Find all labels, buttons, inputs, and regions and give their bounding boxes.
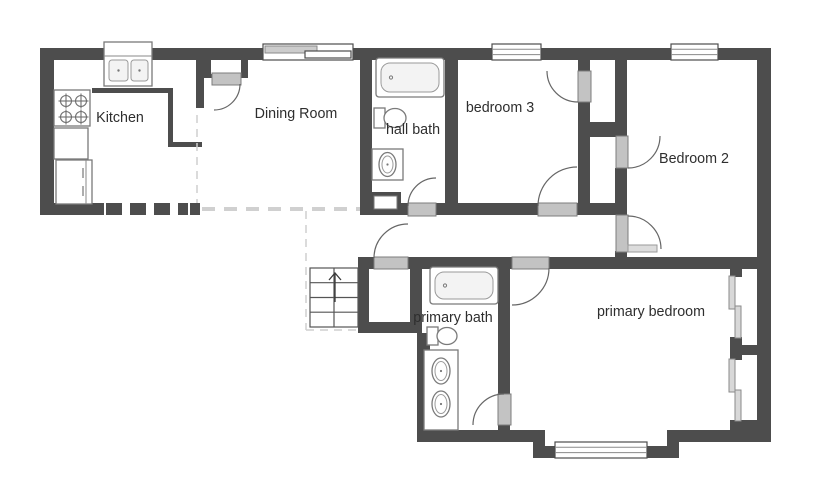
room-label-hall-bath: hall bath xyxy=(386,122,440,138)
hall-vanity-sink-icon xyxy=(372,149,403,180)
door-primary-bedroom xyxy=(512,257,549,305)
room-label-dining: Dining Room xyxy=(255,106,338,122)
window-bedroom2 xyxy=(671,44,718,60)
room-label-kitchen: Kitchen xyxy=(96,110,144,126)
walls xyxy=(40,48,771,458)
kitchen-sink-icon xyxy=(104,42,152,86)
refrigerator-icon xyxy=(56,160,92,204)
closet-sliding-doors-upper xyxy=(729,276,741,338)
primary-toilet-icon xyxy=(427,327,457,345)
primary-double-vanity-icon xyxy=(424,350,458,430)
primary-bathtub-icon xyxy=(430,267,498,304)
window-bedroom3 xyxy=(492,44,541,60)
door-kitchen-dining xyxy=(212,73,241,110)
closet-sliding-doors-lower xyxy=(729,359,741,421)
hall-linen-niche xyxy=(370,192,401,215)
stairs xyxy=(310,268,358,327)
floor-plan: Kitchen Dining Room hall bath bedroom 3 … xyxy=(0,0,821,504)
door-hall-bath xyxy=(408,178,436,216)
counter-cabinet-icon xyxy=(54,128,88,159)
door-bedroom2-closet xyxy=(616,136,660,168)
door-bedroom2 xyxy=(616,215,661,252)
door-bedroom3 xyxy=(538,167,577,216)
window-dining xyxy=(263,44,353,60)
room-label-bedroom2: Bedroom 2 xyxy=(659,151,729,167)
door-hall-closet xyxy=(374,224,408,269)
door-primary-bath xyxy=(473,394,511,425)
floor-plan-page: Kitchen Dining Room hall bath bedroom 3 … xyxy=(0,0,821,504)
window-primary-bedroom xyxy=(555,442,647,458)
door-bedroom3-closet xyxy=(547,71,591,102)
room-label-primary-bedroom: primary bedroom xyxy=(597,304,705,320)
room-label-primary-bath: primary bath xyxy=(413,310,493,326)
stove-icon xyxy=(54,90,90,126)
room-label-bedroom3: bedroom 3 xyxy=(466,100,534,116)
hall-bathtub-icon xyxy=(376,58,444,97)
